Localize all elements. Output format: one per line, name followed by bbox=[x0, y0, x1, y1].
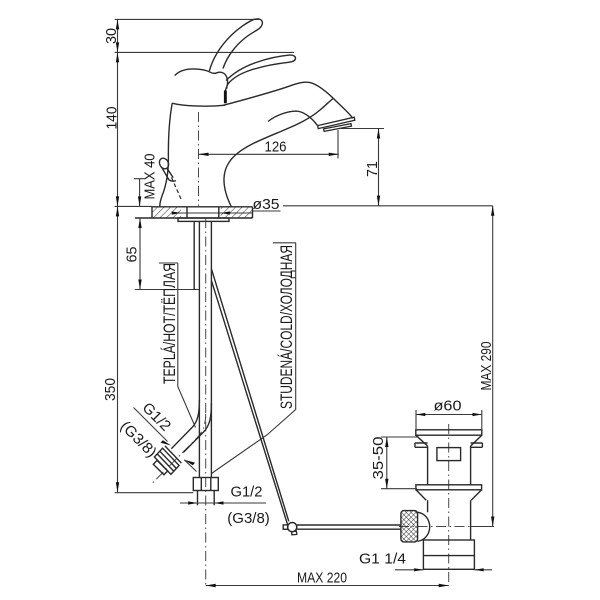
svg-text:STUDENÁ/COLD/ХОЛОДНАЯ: STUDENÁ/COLD/ХОЛОДНАЯ bbox=[277, 245, 296, 409]
svg-text:126: 126 bbox=[265, 138, 287, 155]
svg-text:MAX 220: MAX 220 bbox=[297, 569, 347, 586]
svg-text:ø60: ø60 bbox=[434, 397, 462, 414]
svg-text:MAX 290: MAX 290 bbox=[478, 342, 495, 391]
svg-text:71: 71 bbox=[364, 161, 381, 177]
svg-text:65: 65 bbox=[124, 247, 141, 263]
svg-text:350: 350 bbox=[102, 378, 119, 401]
svg-text:G1 1/4: G1 1/4 bbox=[359, 551, 406, 568]
svg-text:35-50: 35-50 bbox=[370, 437, 387, 480]
svg-text:30: 30 bbox=[103, 28, 120, 44]
svg-text:MAX 40: MAX 40 bbox=[142, 154, 159, 200]
svg-text:TEPLÁ/HOT/ТЁПЛАЯ: TEPLÁ/HOT/ТЁПЛАЯ bbox=[160, 263, 179, 384]
svg-text:(G3/8): (G3/8) bbox=[227, 510, 269, 527]
svg-text:ø35: ø35 bbox=[253, 196, 280, 213]
svg-text:G1/2: G1/2 bbox=[231, 483, 263, 500]
svg-text:140: 140 bbox=[103, 107, 120, 130]
